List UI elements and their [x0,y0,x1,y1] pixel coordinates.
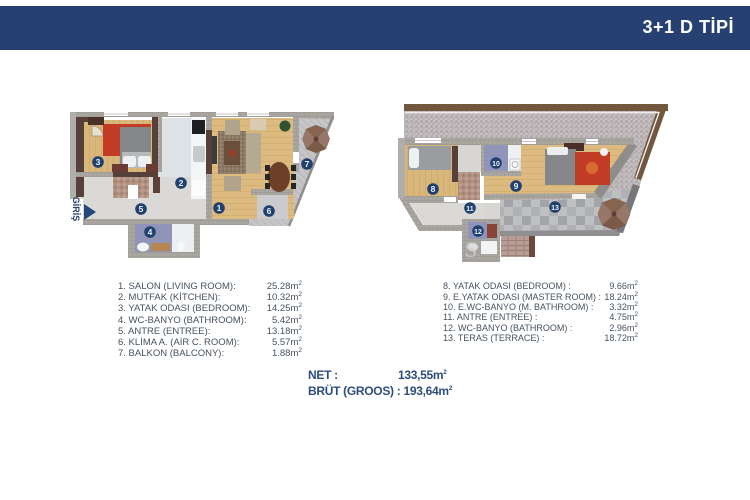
svg-text:6: 6 [267,206,272,216]
svg-text:12: 12 [474,229,482,236]
svg-text:GİRİŞ: GİRİŞ [71,197,81,222]
svg-text:11: 11 [466,206,474,213]
svg-text:10: 10 [492,161,500,168]
svg-text:S: S [465,237,477,262]
svg-text:9: 9 [514,181,519,191]
svg-text:1: 1 [217,203,222,213]
svg-text:4: 4 [148,227,153,237]
svg-text:7: 7 [305,159,310,169]
svg-text:3: 3 [96,157,101,167]
svg-text:5: 5 [139,204,144,214]
svg-text:13: 13 [551,205,559,212]
svg-text:2: 2 [179,178,184,188]
svg-text:8: 8 [431,184,436,194]
